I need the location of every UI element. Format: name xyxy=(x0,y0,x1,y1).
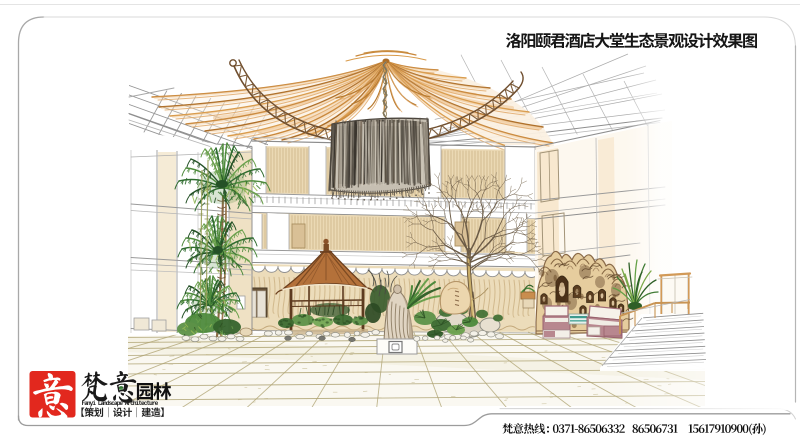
svg-text:Fanyi Landscape Architecture: Fanyi Landscape Architecture xyxy=(82,400,159,407)
